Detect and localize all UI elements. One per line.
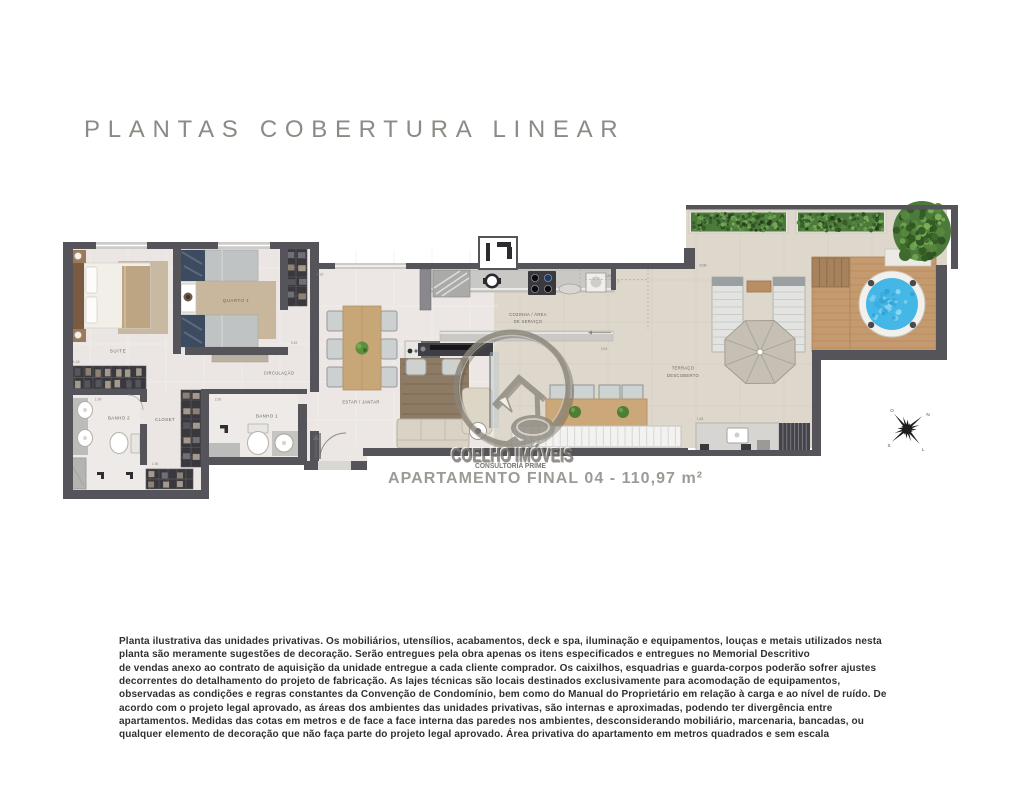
svg-text:N: N <box>926 412 929 417</box>
svg-text:CONSULTORIA PRIME: CONSULTORIA PRIME <box>475 463 546 470</box>
svg-text:2.94: 2.94 <box>601 347 608 351</box>
svg-text:S: S <box>887 443 890 448</box>
svg-text:L: L <box>922 447 925 452</box>
svg-text:DESCOBERTO: DESCOBERTO <box>667 373 700 378</box>
svg-text:CLOSET: CLOSET <box>155 417 175 422</box>
svg-text:ESTAR / JANTAR: ESTAR / JANTAR <box>342 400 379 405</box>
svg-text:BANHO 2: BANHO 2 <box>108 416 130 421</box>
svg-text:3.15: 3.15 <box>291 341 298 345</box>
svg-text:1.35: 1.35 <box>152 462 159 466</box>
svg-text:1.99: 1.99 <box>95 398 102 402</box>
svg-text:2.30: 2.30 <box>215 398 222 402</box>
svg-text:4.61: 4.61 <box>425 273 432 277</box>
svg-text:COZINHA / ÁREA: COZINHA / ÁREA <box>509 312 547 317</box>
svg-text:0.00: 0.00 <box>700 264 707 268</box>
svg-text:SUITE: SUITE <box>110 349 127 354</box>
svg-text:1.65: 1.65 <box>697 417 704 421</box>
svg-text:CIRCULAÇÃO: CIRCULAÇÃO <box>264 371 295 376</box>
svg-text:BANHO 1: BANHO 1 <box>256 414 278 419</box>
svg-text:DE SERVIÇO: DE SERVIÇO <box>514 319 543 324</box>
svg-text:O: O <box>890 408 894 413</box>
svg-text:1.84: 1.84 <box>605 274 612 278</box>
svg-text:TERRAÇO: TERRAÇO <box>672 366 695 371</box>
svg-text:QUARTO 1: QUARTO 1 <box>223 298 250 303</box>
svg-text:4.18: 4.18 <box>73 360 80 364</box>
svg-text:2.92: 2.92 <box>317 273 324 277</box>
